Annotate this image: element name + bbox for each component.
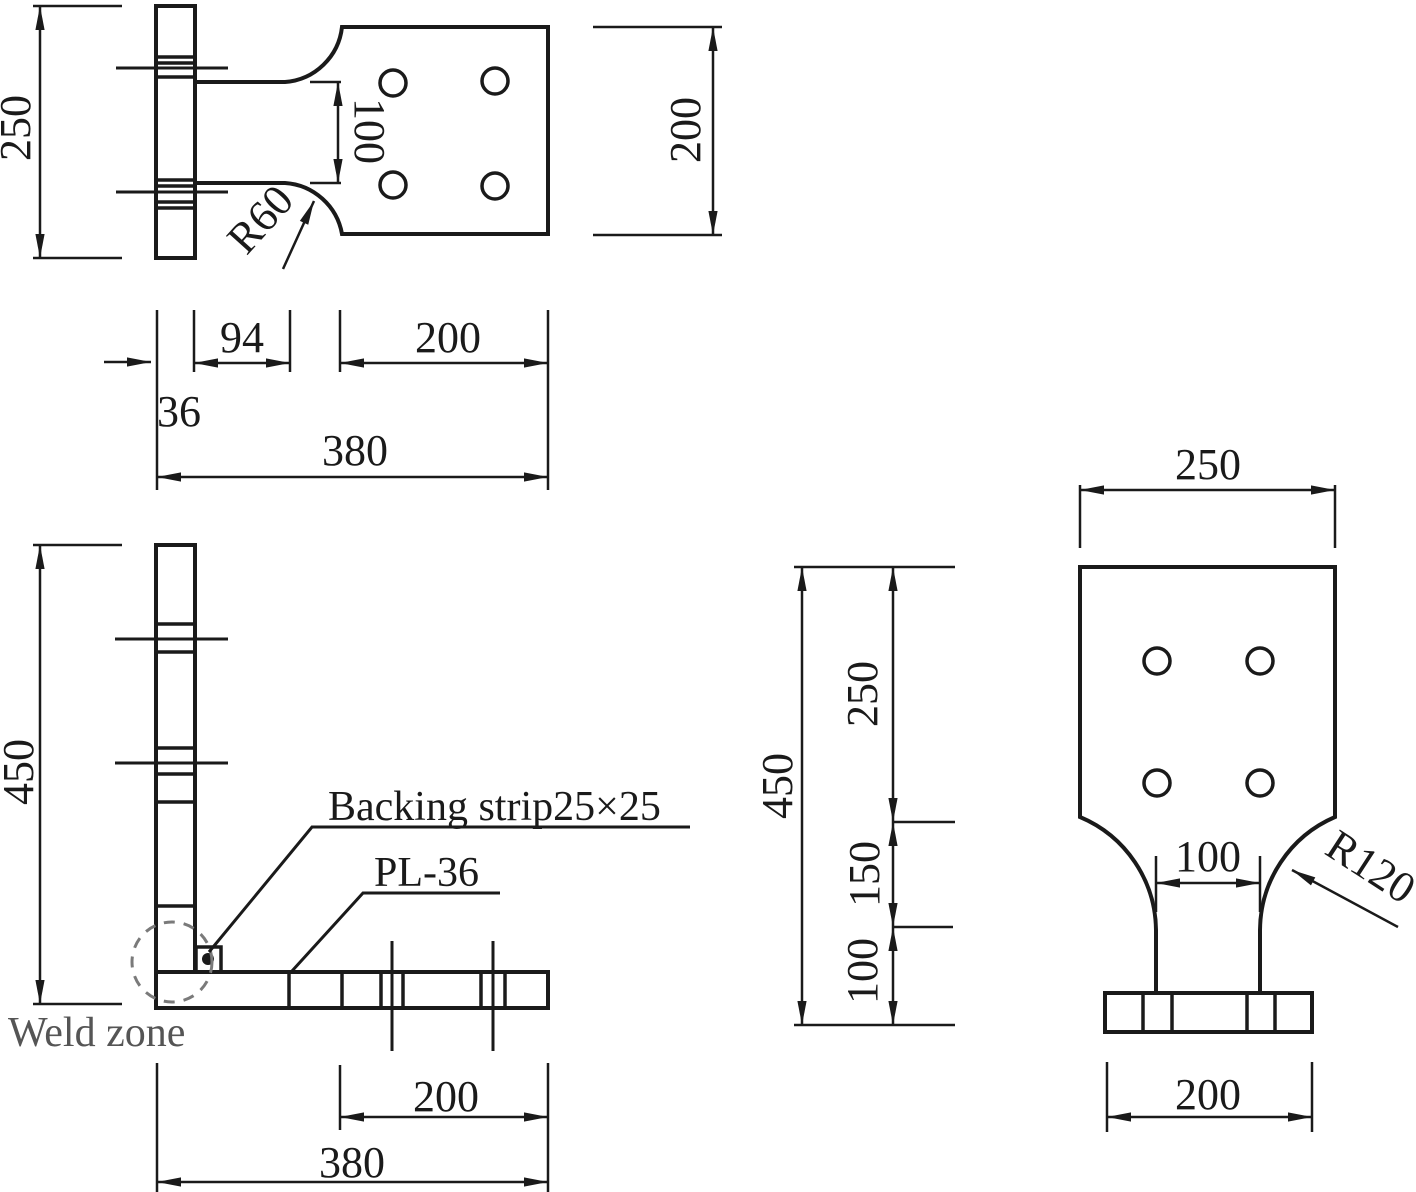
dim-label: R120: [1318, 820, 1416, 913]
bolt-hole: [380, 172, 406, 198]
end-view-base-divisions: [1143, 993, 1275, 1032]
dim-label: 100: [838, 938, 887, 1004]
weld-zone-circle: [132, 922, 212, 1002]
dim-label: 450: [753, 753, 802, 819]
dim-label: 250: [1175, 440, 1241, 489]
dim-label: 100: [345, 98, 394, 164]
dim-top-200-depth: 200: [593, 27, 722, 235]
dim-front-450: 450: [0, 545, 122, 1004]
front-view-base-plate: [156, 972, 548, 1008]
dim-end-r120: R120: [1292, 820, 1416, 927]
dim-top-r60: R60: [217, 176, 314, 269]
dim-end-200: 200: [1107, 1062, 1312, 1132]
bolt-hole: [380, 70, 406, 96]
front-view-base-divisions: [289, 941, 505, 1051]
dim-label: 250: [0, 95, 40, 161]
bolt-hole: [1144, 648, 1170, 674]
bolt-hole: [1144, 770, 1170, 796]
top-view: 250 100 R60 200: [0, 6, 722, 490]
top-view-bolt-holes: [380, 68, 508, 199]
weld-zone-label: Weld zone: [8, 1010, 185, 1056]
drawing-page: 250 100 R60 200: [0, 0, 1416, 1192]
end-view-base-plate: [1105, 993, 1312, 1032]
dim-end-100: 100: [1156, 832, 1260, 912]
bolt-hole: [482, 68, 508, 94]
dim-label: R60: [217, 176, 303, 263]
dim-label: 36: [157, 387, 201, 436]
front-view-flange-plate: [156, 545, 195, 972]
pl36-label: PL-36: [374, 850, 479, 896]
end-view-bolt-holes: [1144, 648, 1273, 796]
dim-label: 100: [1175, 832, 1241, 881]
end-view-plate-outline: [1080, 567, 1335, 993]
dim-end-250: 250: [1080, 440, 1335, 548]
end-view: 250 100 R120 200: [1080, 440, 1416, 1132]
bolt-hole: [482, 173, 508, 199]
dim-label: 94: [220, 313, 264, 362]
top-view-flange-plate: [156, 6, 195, 258]
dim-label: 450: [0, 739, 43, 805]
dim-label: 380: [322, 426, 388, 475]
dim-top-bottom-chain: 94 36 200 380: [104, 310, 548, 490]
front-view: Backing strip25×25 PL-36 Weld zone 450 2…: [0, 545, 690, 1192]
bolt-hole: [1247, 770, 1273, 796]
dim-top-250: 250: [0, 6, 122, 258]
dim-label: 250: [838, 661, 887, 727]
dim-label: 150: [840, 841, 889, 907]
dim-label: 200: [661, 97, 710, 163]
front-view-flange-lines: [115, 624, 228, 906]
backing-strip-label: Backing strip25×25: [328, 784, 661, 830]
technical-drawing: 250 100 R60 200: [0, 0, 1416, 1192]
dim-label: 380: [319, 1138, 385, 1187]
pl36-leader: [292, 893, 500, 971]
dim-label: 200: [415, 313, 481, 362]
dim-label: 200: [413, 1072, 479, 1121]
top-view-flange-weld-lines: [116, 57, 228, 208]
bolt-hole: [1247, 648, 1273, 674]
dim-top-100: 100: [310, 82, 394, 183]
dim-label: 200: [1175, 1070, 1241, 1119]
height-chain-dims: 450 250 150 100: [753, 567, 955, 1025]
dim-front-bottom: 200 380: [157, 1063, 548, 1192]
